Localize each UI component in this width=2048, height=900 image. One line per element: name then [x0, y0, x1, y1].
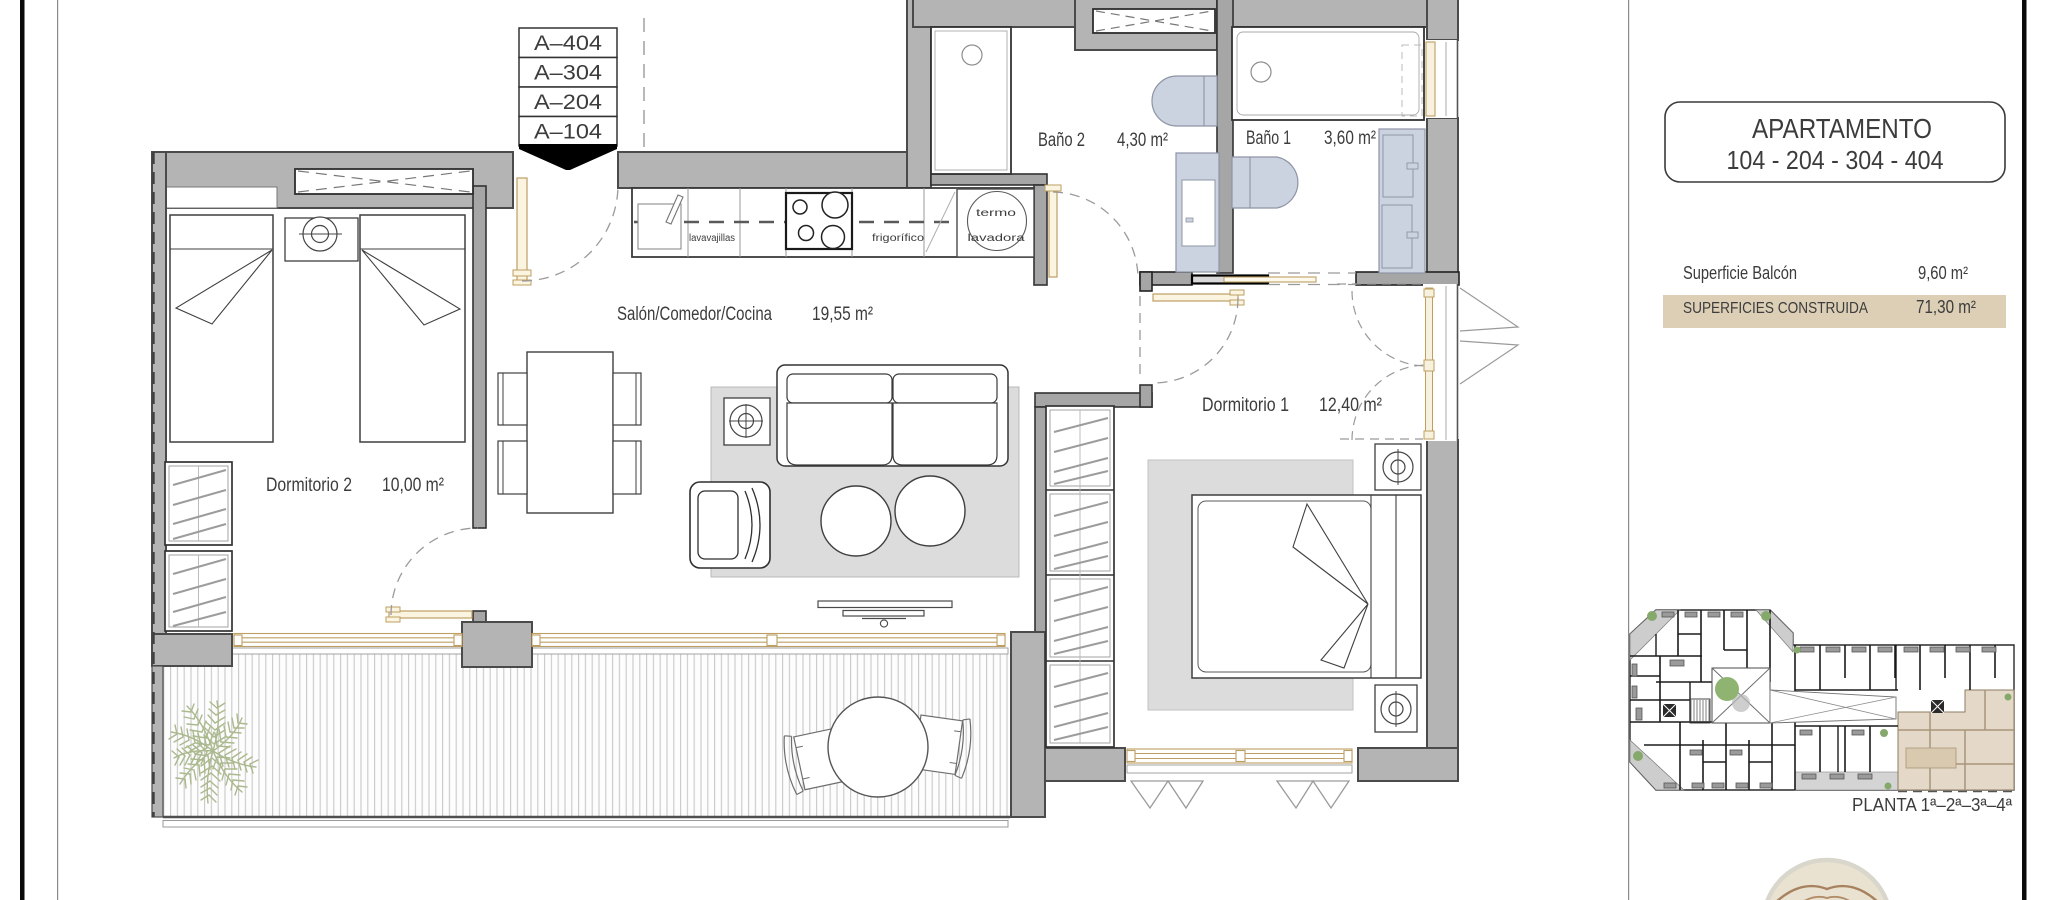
- svg-text:3,60 m²: 3,60 m²: [1324, 128, 1376, 149]
- svg-text:104 - 204 - 304 - 404: 104 - 204 - 304 - 404: [1727, 145, 1944, 175]
- svg-text:A–104: A–104: [534, 121, 602, 144]
- svg-text:Dormitorio 2: Dormitorio 2: [266, 475, 352, 496]
- svg-text:lavadora: lavadora: [968, 233, 1026, 244]
- svg-text:Salón/Comedor/Cocina: Salón/Comedor/Cocina: [617, 304, 772, 325]
- svg-text:10,00 m²: 10,00 m²: [382, 475, 444, 496]
- svg-text:19,55 m²: 19,55 m²: [812, 304, 873, 325]
- svg-text:SUPERFICIES CONSTRUIDA: SUPERFICIES CONSTRUIDA: [1683, 300, 1869, 317]
- svg-text:4,30 m²: 4,30 m²: [1117, 130, 1168, 151]
- svg-text:APARTAMENTO: APARTAMENTO: [1752, 113, 1932, 144]
- svg-text:Superficie Balcón: Superficie Balcón: [1683, 263, 1797, 283]
- svg-text:PLANTA 1ª–2ª–3ª–4ª: PLANTA 1ª–2ª–3ª–4ª: [1852, 795, 2012, 815]
- svg-text:Dormitorio 1: Dormitorio 1: [1202, 395, 1289, 416]
- svg-text:A–404: A–404: [534, 32, 602, 55]
- svg-text:12,40 m²: 12,40 m²: [1319, 395, 1382, 416]
- svg-text:71,30 m²: 71,30 m²: [1916, 297, 1976, 317]
- svg-text:lavavajillas: lavavajillas: [689, 233, 735, 244]
- svg-text:A–204: A–204: [534, 91, 602, 114]
- svg-text:9,60 m²: 9,60 m²: [1918, 263, 1968, 283]
- svg-text:frigorífico: frigorífico: [872, 233, 925, 244]
- svg-text:Baño 2: Baño 2: [1038, 130, 1085, 151]
- svg-text:A–304: A–304: [534, 62, 602, 85]
- svg-text:Baño 1: Baño 1: [1246, 128, 1291, 149]
- svg-text:termo: termo: [976, 208, 1017, 219]
